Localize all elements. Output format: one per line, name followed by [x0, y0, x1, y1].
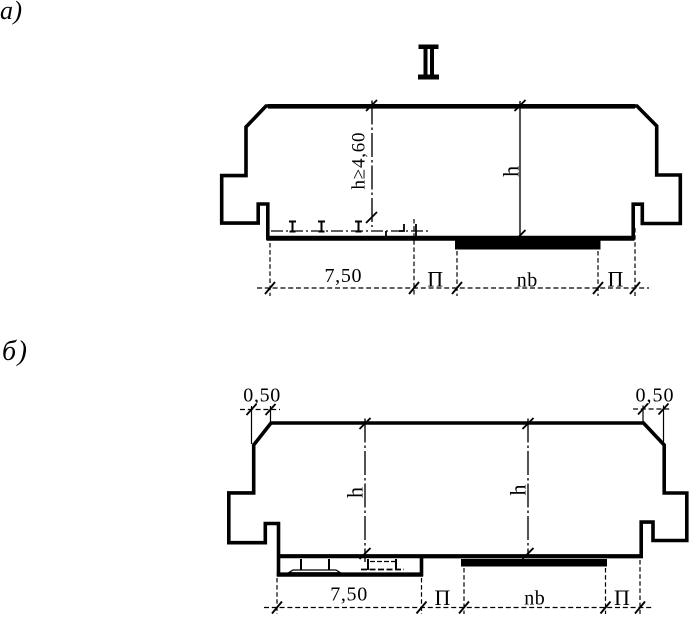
- svg-text:7,50: 7,50: [330, 584, 367, 606]
- svg-text:h: h: [499, 166, 524, 177]
- svg-text:П: П: [608, 267, 624, 292]
- svg-text:h: h: [506, 485, 531, 496]
- svg-text:nb: nb: [524, 588, 545, 610]
- svg-text:П: П: [427, 267, 443, 292]
- svg-text:П: П: [614, 585, 630, 610]
- svg-text:а): а): [0, 0, 22, 25]
- svg-text:h≥4,60: h≥4,60: [349, 133, 370, 190]
- svg-text:0,50: 0,50: [243, 385, 280, 407]
- svg-text:nb: nb: [517, 269, 538, 291]
- svg-text:б): б): [2, 336, 27, 367]
- svg-text:П: П: [435, 585, 451, 610]
- svg-text:h: h: [343, 487, 368, 498]
- svg-text:7,50: 7,50: [325, 265, 362, 287]
